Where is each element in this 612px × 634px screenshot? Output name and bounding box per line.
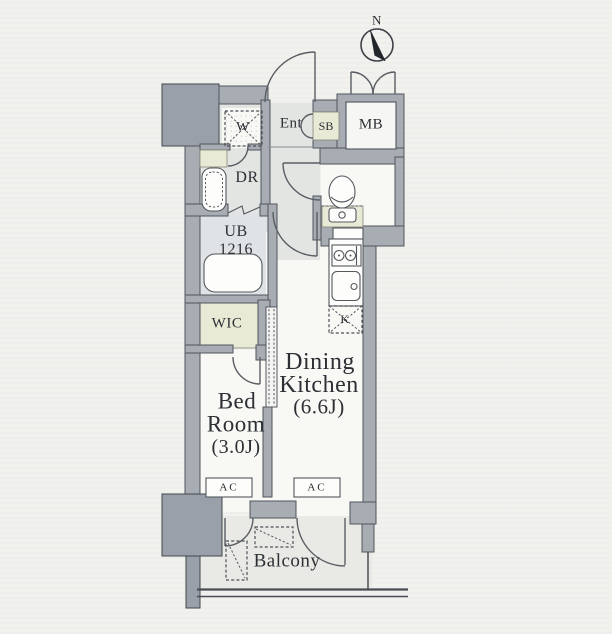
- dressing-room-label: DR: [235, 170, 258, 186]
- washbasin-icon: [202, 168, 226, 211]
- structural-stem-bottom: [186, 556, 200, 608]
- left-exterior-wall: [185, 146, 200, 497]
- compass-north-icon: [361, 29, 393, 61]
- bed-room-label-1: Bed: [218, 390, 257, 413]
- wic-label: WIC: [212, 317, 243, 332]
- floor-plan: N MB Ent SB W DR UB 1216 WIC Bed Room (3…: [0, 0, 612, 634]
- meter-box-icon: [346, 72, 396, 149]
- balcony-right-wall: [362, 524, 374, 552]
- refrigerator-space-label: K: [340, 313, 349, 325]
- dining-kitchen-size-label: (6.6J): [293, 397, 344, 418]
- structural-pillar-bottom-left: [162, 494, 222, 556]
- toilet-top-wall: [320, 148, 404, 164]
- meter-box-label: MB: [359, 118, 383, 133]
- right-exterior-wall-lower: [363, 246, 376, 505]
- washer-space-label: W: [236, 121, 250, 135]
- bed-room-top-wall: [185, 345, 233, 353]
- ac-label-bedroom: AC: [219, 483, 238, 494]
- bathtub-icon: [204, 254, 262, 292]
- shoe-box-label: SB: [319, 120, 334, 132]
- balcony-wall-right-step: [350, 502, 376, 524]
- bed-room-size-label: (3.0J): [211, 437, 260, 457]
- unit-bath-label: UB: [224, 224, 247, 240]
- dining-kitchen-label-1: Dining: [285, 350, 355, 374]
- unit-bath-size-label: 1216: [219, 242, 253, 258]
- balcony-wall-center: [250, 501, 296, 518]
- entrance-top-wall-right: [313, 100, 340, 112]
- floor-plan-drawing: [0, 0, 612, 634]
- unit-bath-right-wall: [268, 204, 277, 307]
- entrance-door-arc: [265, 52, 315, 102]
- shelf-box: [200, 150, 227, 167]
- kitchen-sink-icon: [332, 272, 360, 301]
- unit-bath-bottom-wall: [185, 295, 268, 303]
- bed-room-label-2: Room: [207, 413, 265, 436]
- compass-north-label: N: [372, 14, 382, 27]
- dining-kitchen-label-2: Kitchen: [279, 373, 358, 397]
- entrance-label: Ent: [280, 117, 302, 132]
- structural-pillar-top-left: [162, 84, 219, 146]
- balcony-label: Balcony: [254, 552, 321, 571]
- sliding-partition-hatch: [266, 307, 277, 407]
- kitchen-stove-icon: [332, 245, 361, 266]
- ac-label-dk: AC: [307, 483, 326, 494]
